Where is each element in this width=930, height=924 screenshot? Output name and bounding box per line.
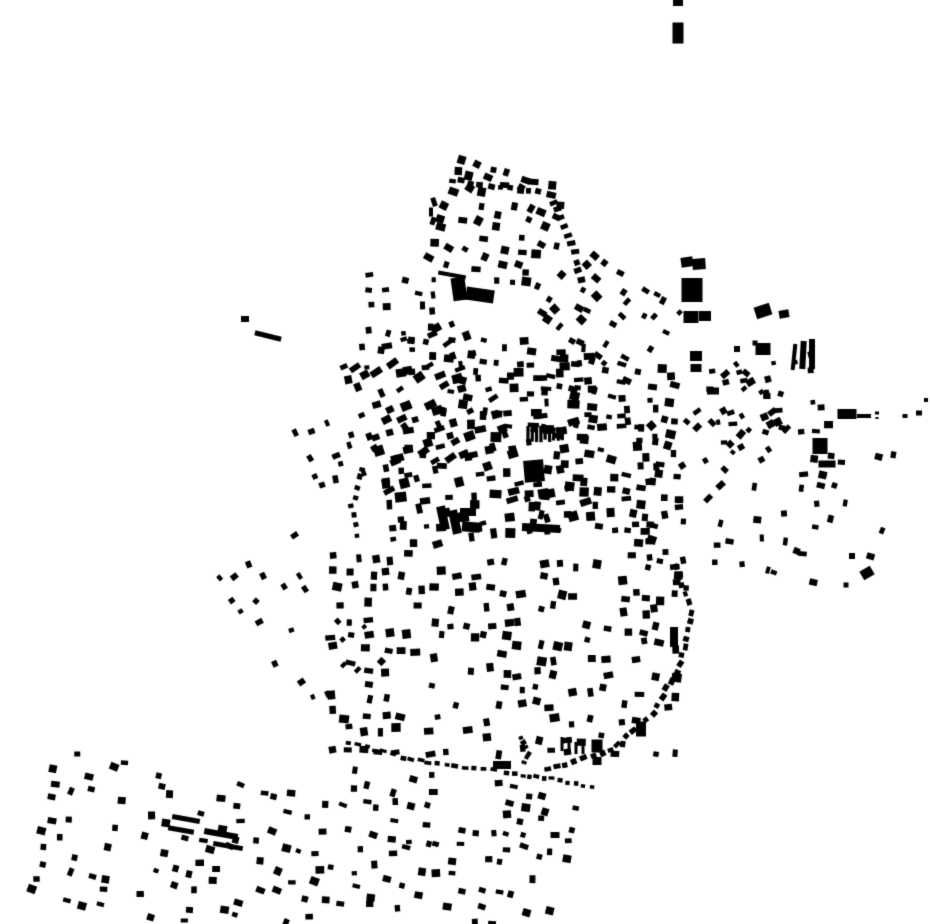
map-viewport: [0, 0, 930, 924]
building-footprint-map: [0, 0, 930, 924]
